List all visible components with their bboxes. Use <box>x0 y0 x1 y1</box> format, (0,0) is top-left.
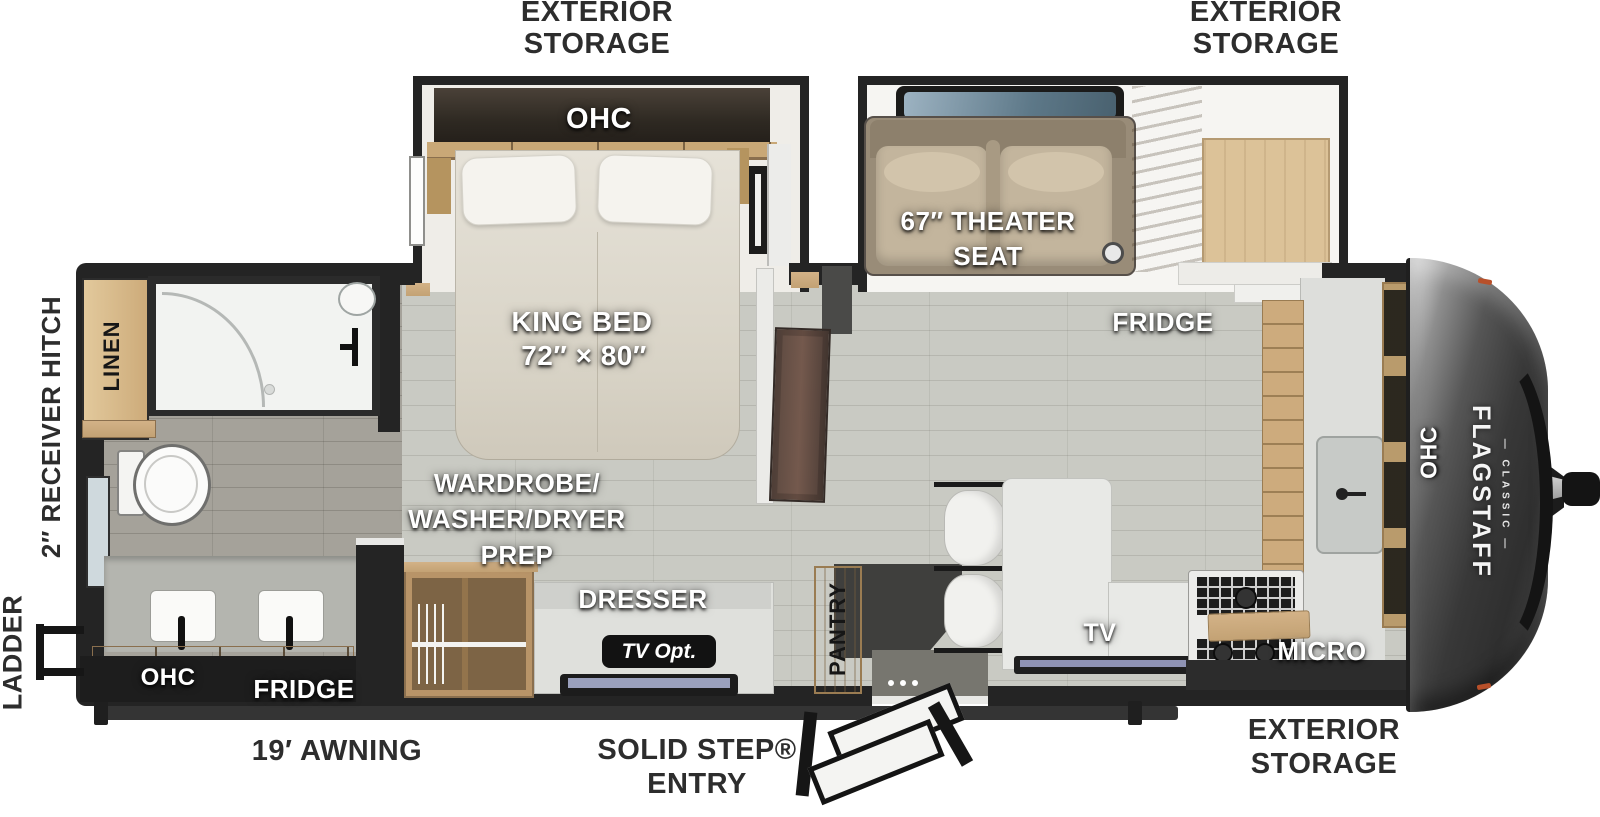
label-exterior-storage-bottom-right-2: STORAGE <box>1251 750 1397 779</box>
bedroom-door <box>769 327 831 503</box>
ladder-rung-bottom <box>36 668 84 676</box>
mid-wall-trim <box>791 272 819 288</box>
theater-side-cabinet <box>1132 86 1202 272</box>
shower-drain <box>264 384 275 395</box>
step-well-dot-3 <box>912 680 918 686</box>
label-linen: LINEN <box>99 296 125 416</box>
label-entry: ENTRY <box>647 770 747 799</box>
shower <box>148 276 380 416</box>
label-island-tv: TV <box>1084 621 1117 646</box>
wardrobe-interior <box>412 578 526 690</box>
hitch-coupler <box>1562 472 1600 506</box>
island-chair-bar-3 <box>934 648 1010 653</box>
linen-shelf-trim <box>82 420 156 438</box>
brand-logo: FLAGSTAFF <box>1465 367 1495 617</box>
label-wardrobe-2: WASHER/DRYER <box>408 506 625 532</box>
bedroom-side-cabinet <box>767 144 791 266</box>
bath-wall-pillar-cap <box>356 538 404 545</box>
island-chair-bar-2 <box>934 566 1010 571</box>
label-theater-seat-1: 67″ THEATER <box>901 208 1076 234</box>
dresser-tv <box>560 674 738 696</box>
label-living-fridge: FRIDGE <box>1112 309 1213 335</box>
label-bath-ohc: OHC <box>141 666 196 690</box>
bedroom-window-right-glass <box>755 174 761 246</box>
theater-seat-cupholder <box>1102 242 1124 264</box>
island-chair-bar-1 <box>934 482 1010 487</box>
ladder-icon <box>36 624 86 680</box>
wardrobe-shelf-bar <box>412 642 526 647</box>
nightstand-left <box>427 158 451 214</box>
label-awning: 19′ AWNING <box>252 737 422 766</box>
theater-window-glass <box>904 92 1116 118</box>
theater-seat-headrest-left <box>884 152 980 192</box>
island-tv-screen <box>1020 660 1196 667</box>
label-exterior-storage-top-left-2: STORAGE <box>524 30 670 59</box>
island-chair-2 <box>944 574 1008 648</box>
wardrobe-cabinet <box>404 568 534 698</box>
label-exterior-storage-top-right-1: EXTERIOR <box>1190 0 1342 27</box>
island-tv <box>1014 656 1202 674</box>
pillow-right <box>597 154 713 226</box>
toilet-bowl <box>133 444 211 526</box>
label-wardrobe-1: WARDROBE/ <box>434 470 600 496</box>
stove-burner-top <box>1235 587 1257 609</box>
label-receiver-hitch: 2″ RECEIVER HITCH <box>38 267 64 587</box>
label-exterior-storage-bottom-right-1: EXTERIOR <box>1248 716 1400 745</box>
label-king-bed-1: KING BED <box>512 308 653 336</box>
label-king-bed-2: 72″ × 80″ <box>521 342 647 370</box>
partition-wall-gray <box>822 266 852 334</box>
kitchen-faucet-arm <box>1346 492 1366 496</box>
label-micro: MICRO <box>1277 638 1366 664</box>
bath-wall-pillar <box>356 542 404 702</box>
label-wardrobe-3: PREP <box>481 542 554 568</box>
toilet-seat-ring <box>144 455 198 513</box>
label-kitchen-ohc: OHC <box>1418 411 1441 495</box>
step-well-dot-1 <box>888 680 894 686</box>
label-solid-step: SOLID STEP® <box>597 736 796 765</box>
label-dresser: DRESSER <box>578 586 707 612</box>
vanity-faucet-left <box>178 616 185 650</box>
step-well <box>872 650 988 696</box>
tv-option-badge: TV Opt. <box>602 635 716 668</box>
kitchen-sink <box>1316 436 1384 554</box>
pillow-left <box>461 154 577 226</box>
floor-plan-canvas: TV Opt. FL <box>0 0 1600 817</box>
label-exterior-storage-top-left-1: EXTERIOR <box>521 0 673 27</box>
label-pantry: PANTRY <box>825 569 851 689</box>
kitchen-lower-cabinets <box>1262 300 1304 590</box>
brand-series: — CLASSIC — <box>1498 416 1511 576</box>
living-fridge-cabinet <box>1202 138 1330 270</box>
label-exterior-storage-top-right-2: STORAGE <box>1193 30 1339 59</box>
tv-option-label: TV Opt. <box>622 640 697 663</box>
wardrobe-divider <box>462 578 468 690</box>
ladder-rung-top <box>36 626 84 634</box>
label-ladder: LADDER <box>0 573 27 733</box>
theater-seat-headrest-right <box>1008 152 1104 192</box>
label-theater-seat-2: SEAT <box>953 243 1022 269</box>
awning-rail-cap-right <box>1128 701 1142 725</box>
label-bedroom-ohc: OHC <box>566 105 632 134</box>
shower-head-bar-icon <box>352 328 358 366</box>
bath-bedroom-divider-wall <box>378 281 400 432</box>
island-chair-1 <box>944 490 1008 566</box>
shower-corner-seat <box>338 282 376 316</box>
label-bath-fridge: FRIDGE <box>253 676 354 702</box>
awning-rail-cap-left <box>94 701 108 725</box>
bedroom-window-left <box>409 156 425 246</box>
vanity-faucet-right <box>286 616 293 650</box>
dresser-tv-screen <box>568 678 730 688</box>
awning-rail <box>98 706 1178 720</box>
step-well-dot-2 <box>900 680 906 686</box>
